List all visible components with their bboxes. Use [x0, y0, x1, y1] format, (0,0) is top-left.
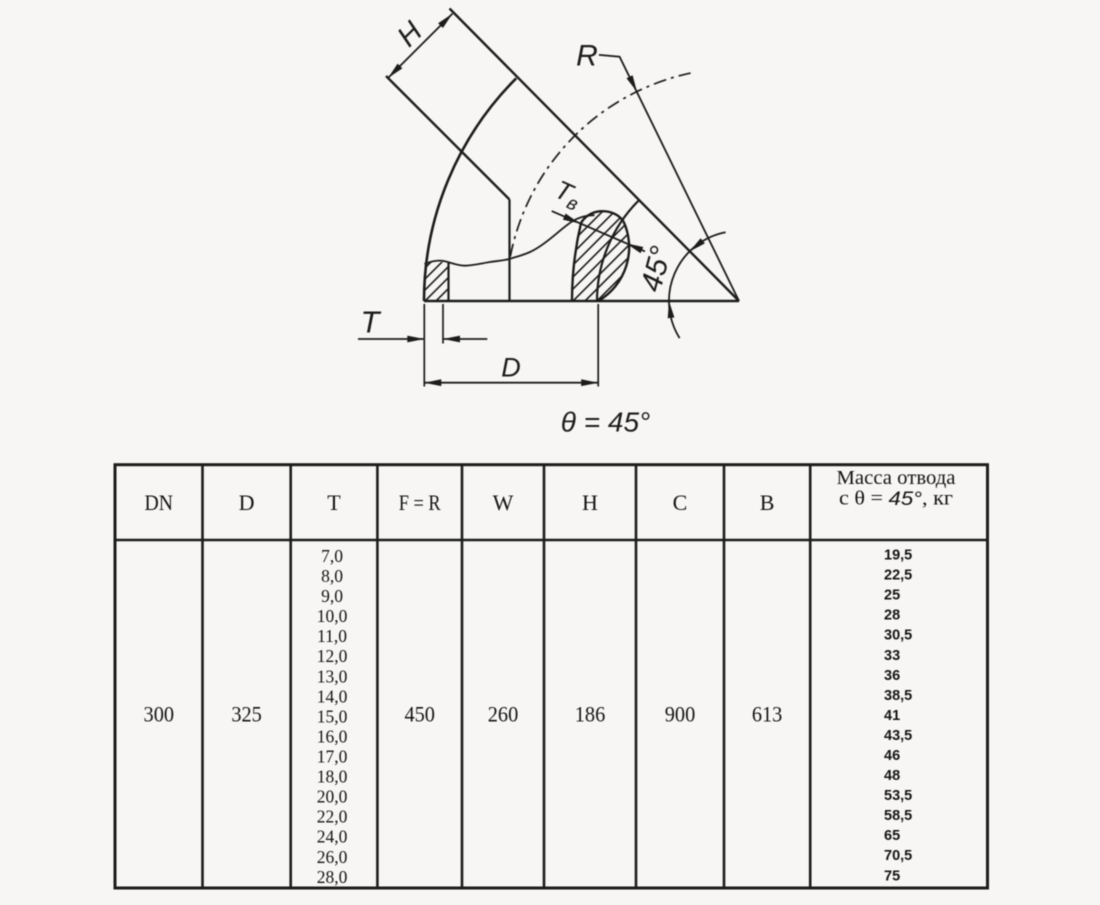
svg-text:22,0: 22,0: [317, 807, 348, 827]
svg-text:T: T: [327, 490, 341, 515]
svg-text:325: 325: [231, 702, 262, 727]
svg-text:DN: DN: [145, 490, 174, 515]
svg-text:43,5: 43,5: [884, 728, 912, 744]
svg-text:с θ = 45°, кг: с θ = 45°, кг: [839, 488, 953, 510]
svg-text:17,0: 17,0: [317, 747, 348, 767]
svg-text:D: D: [239, 490, 255, 515]
svg-text:R: R: [576, 40, 598, 73]
svg-text:75: 75: [884, 868, 900, 884]
svg-text:28,0: 28,0: [317, 867, 348, 887]
svg-text:C: C: [673, 490, 688, 515]
svg-text:F = R: F = R: [399, 490, 441, 515]
svg-text:19,5: 19,5: [884, 548, 912, 564]
svg-text:65: 65: [884, 828, 900, 844]
svg-text:W: W: [493, 490, 514, 515]
svg-text:T: T: [361, 305, 382, 340]
svg-text:36: 36: [884, 668, 900, 684]
svg-text:7,0: 7,0: [321, 546, 343, 566]
svg-text:25: 25: [884, 588, 900, 604]
svg-text:14,0: 14,0: [317, 686, 348, 706]
svg-text:260: 260: [488, 702, 519, 727]
svg-text:18,0: 18,0: [317, 767, 348, 787]
svg-text:38,5: 38,5: [884, 688, 912, 704]
svg-text:53,5: 53,5: [884, 788, 912, 804]
svg-text:15,0: 15,0: [317, 706, 348, 726]
svg-text:48: 48: [884, 768, 900, 784]
svg-text:186: 186: [575, 702, 606, 727]
svg-text:B: B: [760, 490, 775, 515]
svg-text:28: 28: [884, 608, 900, 624]
svg-text:24,0: 24,0: [317, 827, 348, 847]
svg-text:26,0: 26,0: [317, 847, 348, 867]
svg-text:22,5: 22,5: [884, 568, 912, 584]
svg-text:13,0: 13,0: [317, 666, 348, 686]
svg-text:θ = 45°: θ = 45°: [561, 406, 650, 437]
svg-text:11,0: 11,0: [317, 626, 347, 646]
svg-text:30,5: 30,5: [884, 628, 912, 644]
svg-text:70,5: 70,5: [884, 848, 912, 864]
svg-text:16,0: 16,0: [317, 727, 348, 747]
svg-text:450: 450: [404, 702, 435, 727]
svg-text:8,0: 8,0: [321, 566, 343, 586]
svg-text:20,0: 20,0: [317, 787, 348, 807]
svg-text:300: 300: [144, 702, 175, 727]
svg-text:41: 41: [884, 708, 900, 724]
svg-text:D: D: [501, 353, 521, 383]
svg-text:9,0: 9,0: [321, 586, 343, 606]
svg-text:46: 46: [884, 748, 900, 764]
svg-text:33: 33: [884, 648, 900, 664]
svg-text:58,5: 58,5: [884, 808, 912, 824]
svg-text:900: 900: [665, 702, 696, 727]
svg-text:Масса отвода: Масса отвода: [837, 468, 956, 489]
svg-text:10,0: 10,0: [317, 606, 348, 626]
svg-text:12,0: 12,0: [317, 646, 348, 666]
svg-text:613: 613: [752, 702, 783, 727]
svg-text:H: H: [582, 490, 598, 515]
